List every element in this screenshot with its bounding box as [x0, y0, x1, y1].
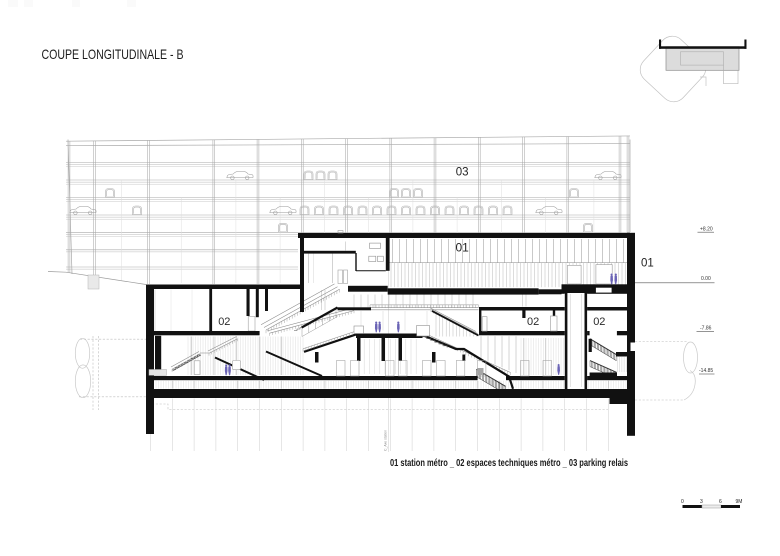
svg-text:01: 01	[456, 240, 470, 254]
svg-text:C_Axe station: C_Axe station	[384, 430, 388, 451]
svg-text:+8.20: +8.20	[700, 226, 713, 232]
svg-text:02: 02	[527, 316, 539, 328]
svg-text:COUPE LONGITUDINALE - B: COUPE LONGITUDINALE - B	[42, 46, 184, 62]
svg-text:-7.86: -7.86	[700, 326, 712, 332]
svg-text:0.00: 0.00	[701, 276, 711, 282]
svg-text:03: 03	[456, 167, 469, 179]
svg-text:02: 02	[218, 316, 230, 328]
svg-text:0: 0	[681, 499, 684, 505]
svg-text:01: 01	[641, 257, 654, 269]
svg-text:6: 6	[719, 499, 722, 505]
svg-text:3: 3	[700, 499, 703, 505]
svg-text:9M: 9M	[736, 499, 743, 505]
svg-text:02: 02	[593, 316, 605, 328]
svg-text:-14.85: -14.85	[699, 368, 713, 374]
svg-text:01 station métro _ 02 espaces: 01 station métro _ 02 espaces techniques…	[390, 458, 628, 469]
